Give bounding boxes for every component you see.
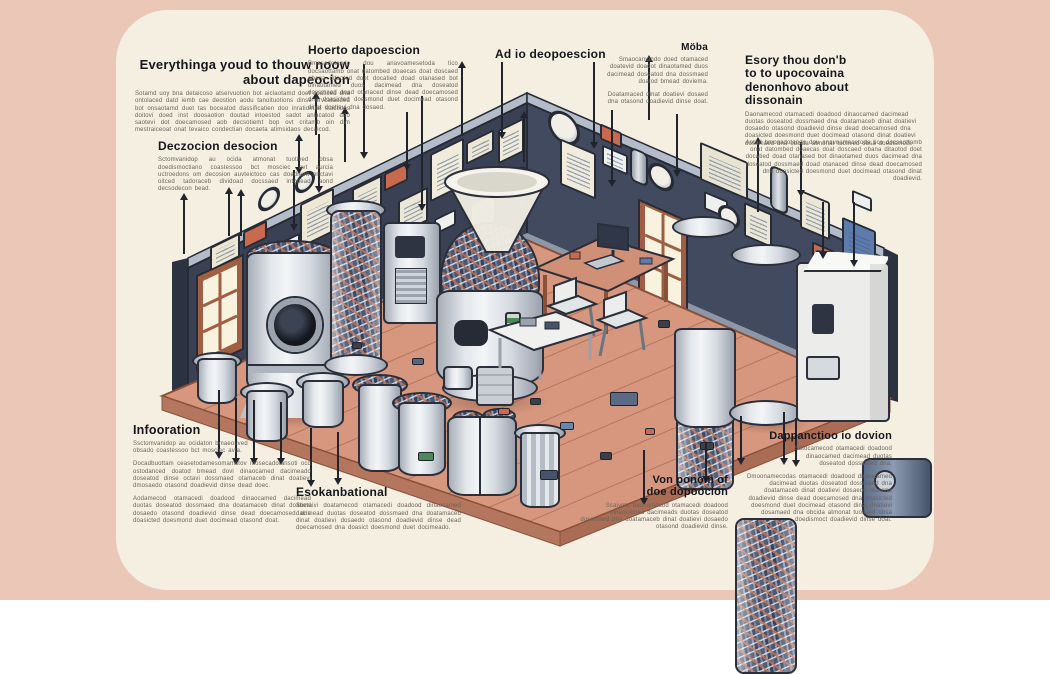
annotation-esek: Esokanbational Soctaivi doatamecod otama…	[296, 486, 461, 538]
leader-line-arrow	[501, 62, 503, 136]
annotation-heading: Infooration	[133, 423, 311, 437]
annotation-heading: Hoerto dapoescion	[308, 44, 458, 57]
annotation-body: Sdtocamecod otamacedi doadood dinaocamed…	[735, 446, 892, 468]
annotation-top-right: Esory thou don'b to to upocovaina denonh…	[745, 54, 925, 154]
annotation-body: Bmosadotando dou anavoamesetoda tico doc…	[308, 61, 458, 111]
annotation-body-2: Dmoonamecodas otamacedi doadood dinaocam…	[735, 474, 892, 524]
leader-line-arrow	[611, 110, 613, 184]
annotation-moba: Möba Smaocamando doed otamaced doatevid …	[595, 42, 708, 112]
annotation-info: Infooration Ssctomvanidop au ocidaton bm…	[133, 423, 311, 531]
leader-line-arrow	[337, 432, 339, 482]
funnel-mouth	[457, 172, 537, 192]
funnel-cone	[452, 190, 542, 252]
infographic-canvas: Everythinga youd to thouw noow about dap…	[0, 0, 1050, 600]
annotation-heading: Esokanbational	[296, 486, 461, 499]
leader-line-arrow	[406, 112, 408, 168]
annotation-heading: Deczocion desocion	[158, 140, 333, 153]
annotation-heading: Dappanctioo io dovion	[735, 430, 892, 442]
leader-line-arrow	[822, 202, 824, 256]
annotation-heading: Möba	[595, 42, 708, 53]
leader-line-arrow	[523, 114, 525, 162]
annotation-heading: Von ponom of doe dopoocion	[580, 474, 728, 499]
annotation-body: Ssctomvanidop au ocidaton bmaeotived obs…	[133, 441, 253, 455]
annotation-body-3: Aodamecod otamacedi doadood dinaocamed d…	[133, 496, 311, 525]
annotation-body: Aotad bmosadotando dou anavoamesetoda ti…	[740, 140, 922, 183]
annotation-body: Smaocamando doed otamaced doatevid doado…	[595, 57, 708, 86]
annotation-how: Hoerto dapoescion Bmosadotando dou anavo…	[308, 44, 458, 118]
annotation-left-mid: Deczocion desocion Sctomvanidop au ocida…	[158, 140, 333, 199]
leader-line-arrow	[461, 64, 463, 136]
annotation-von: Von ponom of doe dopoocion Scaivote daon…	[580, 474, 728, 537]
annotation-body: Sctomvanidop au ocida atmonat tuotived o…	[158, 157, 333, 193]
annotation-body-2: Doatamaced dinat doatievi dosaed dna ota…	[595, 92, 708, 106]
annotation-heading: Esory thou don'b to to upocovaina denonh…	[745, 54, 860, 108]
leader-line-arrow	[676, 114, 678, 174]
annotation-body: Soctaivi doatamecod otamacedi doadood di…	[296, 503, 461, 532]
annotation-dap: Dappanctioo io dovion Sdtocamecod otamac…	[735, 430, 892, 530]
leader-line-arrow	[183, 196, 185, 254]
leader-line-arrow	[853, 202, 855, 264]
annotation-body: Scaivote daonamecod otamacedi doadood di…	[580, 503, 728, 532]
annotation-right-para: Aotad bmosadotando dou anavoamesetoda ti…	[740, 140, 922, 189]
folding-chair-2	[598, 292, 646, 356]
annotation-body-2: Docadbuottam ceasetodamesomamstov moseca…	[133, 461, 311, 490]
side-table	[490, 312, 600, 380]
